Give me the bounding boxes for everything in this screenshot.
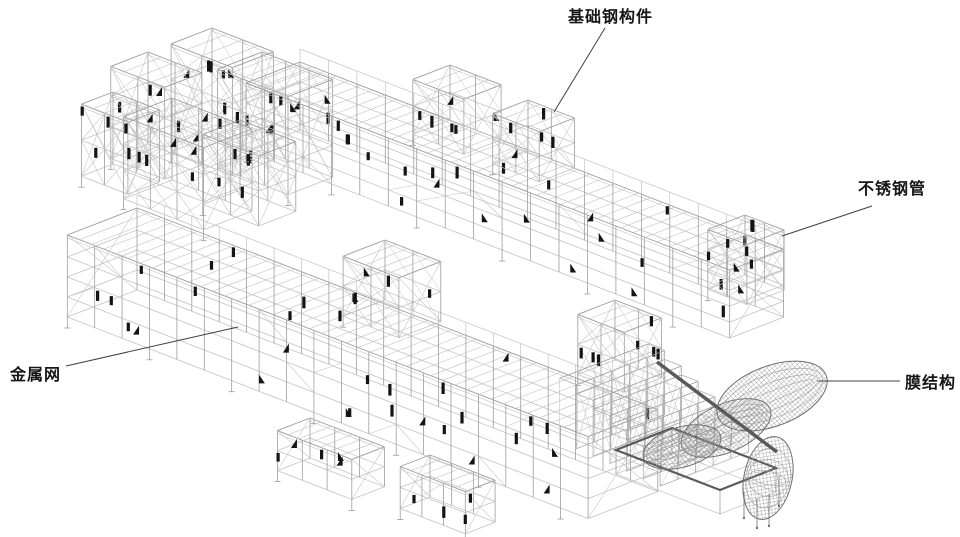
- label-stainless-pipe: 不锈钢管: [858, 180, 926, 198]
- lower-bar-tower-1: [340, 240, 441, 338]
- corner-tower-b: [168, 28, 273, 176]
- label-membrane: 膜结构: [905, 374, 956, 392]
- label-metal-mesh: 金属网: [10, 366, 61, 384]
- front-module-1: [274, 418, 384, 510]
- front-module-2: [397, 455, 495, 537]
- diagram-page: { "canvas": { "width": 960, "height": 53…: [0, 0, 960, 537]
- label-foundation-steel: 基础钢构件: [568, 8, 653, 26]
- axonometric-wireframe-drawing: [0, 0, 960, 537]
- diagram-canvas: 基础钢构件 不锈钢管 金属网 膜结构: [0, 0, 960, 537]
